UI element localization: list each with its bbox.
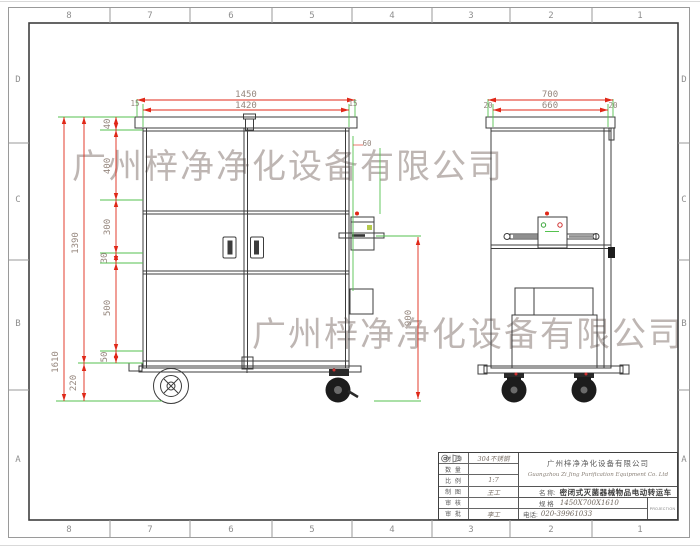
front-view-cart — [129, 114, 384, 404]
field-scale: 比 例 1:7 — [439, 475, 518, 486]
dim-chain-30: 30 — [100, 253, 110, 264]
company-name-cn: 广州梓净净化设备有限公司 — [519, 458, 677, 469]
field-drafter: 制 图 王工 — [439, 487, 518, 498]
grid-col-label: 8 — [66, 525, 71, 535]
field-label: 审 核 — [439, 498, 469, 508]
grid-col-label: 5 — [309, 525, 314, 535]
grid-col-label: 8 — [66, 11, 71, 21]
dim-side-flange-left: 20 — [483, 101, 493, 110]
grid-row-label: C — [681, 195, 686, 205]
field-value — [469, 464, 518, 474]
title-block-info: 广州梓净净化设备有限公司 Guangzhou Zi Jing Purificat… — [519, 453, 677, 519]
dim-chain-40: 40 — [103, 119, 113, 130]
dim-height-body: 1390 — [71, 232, 81, 254]
dim-front-width-total: 1450 — [235, 90, 257, 100]
dim-side-width-total: 700 — [542, 90, 558, 100]
grid-col-label: 6 — [228, 11, 233, 21]
grid-col-label: 1 — [637, 11, 642, 21]
spec-label: 规 格 — [539, 498, 554, 508]
field-approver: 审 批 李工 — [439, 509, 518, 519]
field-value: 1:7 — [469, 475, 518, 485]
grid-col-label: 4 — [389, 11, 394, 21]
dimension-lines — [62, 98, 613, 401]
field-value: 304不锈钢 — [469, 453, 518, 463]
dim-side-flange-right: 20 — [608, 101, 618, 110]
company-name-en: Guangzhou Zi Jing Purification Equipment… — [519, 472, 677, 478]
grid-col-label: 1 — [637, 525, 642, 535]
spec-value: 1450X700X1610 — [560, 499, 619, 507]
grid-col-label: 7 — [147, 11, 152, 21]
grid-col-label: 3 — [468, 11, 473, 21]
spec-row: 规 格 1450X700X1610 — [519, 498, 647, 509]
grid-row-label: A — [15, 455, 21, 465]
dim-side-width-inner: 660 — [542, 101, 558, 111]
field-label: 比 例 — [439, 475, 469, 485]
dim-box-offset: 60 — [362, 139, 372, 148]
projection-symbol-cell: PROJECTION — [647, 498, 677, 519]
company-block: 广州梓净净化设备有限公司 Guangzhou Zi Jing Purificat… — [519, 453, 677, 487]
field-label: 审 批 — [439, 509, 469, 519]
name-value: 密闭式灭菌器械物品电动转运车 — [560, 487, 672, 498]
grid-row-label: D — [15, 75, 20, 85]
product-name-row: 名 称: 密闭式灭菌器械物品电动转运车 — [519, 487, 677, 498]
dim-front-flange-right: 15 — [348, 99, 357, 108]
field-value — [469, 498, 518, 508]
grid-col-label: 2 — [548, 525, 553, 535]
field-value: 王工 — [469, 487, 518, 497]
field-value: 李工 — [469, 509, 518, 519]
grid-col-label: 7 — [147, 525, 152, 535]
grid-row-label: C — [15, 195, 20, 205]
projection-symbol-icon — [439, 453, 463, 464]
dim-chain-500: 500 — [103, 300, 113, 316]
field-quantity: 数 量 — [439, 464, 518, 475]
extension-lines — [56, 99, 613, 401]
field-checker: 审 核 — [439, 498, 518, 509]
field-label: 数 量 — [439, 464, 469, 474]
dim-front-flange-left: 15 — [130, 99, 139, 108]
engineering-drawing-sheet: 广州梓净净化设备有限公司 广州梓净净化设备有限公司 8 7 6 5 4 3 2 … — [0, 0, 700, 548]
phone-value: 020-39961033 — [541, 510, 592, 518]
dim-chain-300: 300 — [103, 219, 113, 235]
dim-chain-400: 400 — [103, 158, 113, 174]
grid-row-label: A — [681, 455, 687, 465]
grid-col-label: 4 — [389, 525, 394, 535]
grid-col-label: 2 — [548, 11, 553, 21]
phone-label: 电话: — [523, 509, 538, 519]
dim-height-total: 1610 — [51, 351, 61, 373]
grid-row-label: B — [15, 319, 20, 329]
dim-handle-height: 900 — [404, 310, 414, 326]
grid-row-label: D — [681, 75, 686, 85]
grid-col-label: 3 — [468, 525, 473, 535]
projection-label: PROJECTION — [650, 507, 676, 511]
title-block: 材 质 304不锈钢 数 量 比 例 1:7 制 图 王工 审 核 审 批 李工 — [438, 452, 678, 520]
name-label: 名 称: — [539, 487, 556, 497]
dimension-text: 1450 1420 15 15 700 660 20 20 1610 1390 … — [51, 90, 618, 391]
side-view-cart — [478, 117, 629, 403]
dim-ground-clearance: 220 — [69, 375, 79, 391]
grid-col-label: 6 — [228, 525, 233, 535]
field-label: 制 图 — [439, 487, 469, 497]
grid-row-label: B — [681, 319, 686, 329]
grid-col-label: 5 — [309, 11, 314, 21]
dim-chain-50: 50 — [100, 352, 110, 363]
dim-front-width-inner: 1420 — [235, 101, 257, 111]
phone-row: 电话: 020-39961033 — [519, 509, 647, 519]
